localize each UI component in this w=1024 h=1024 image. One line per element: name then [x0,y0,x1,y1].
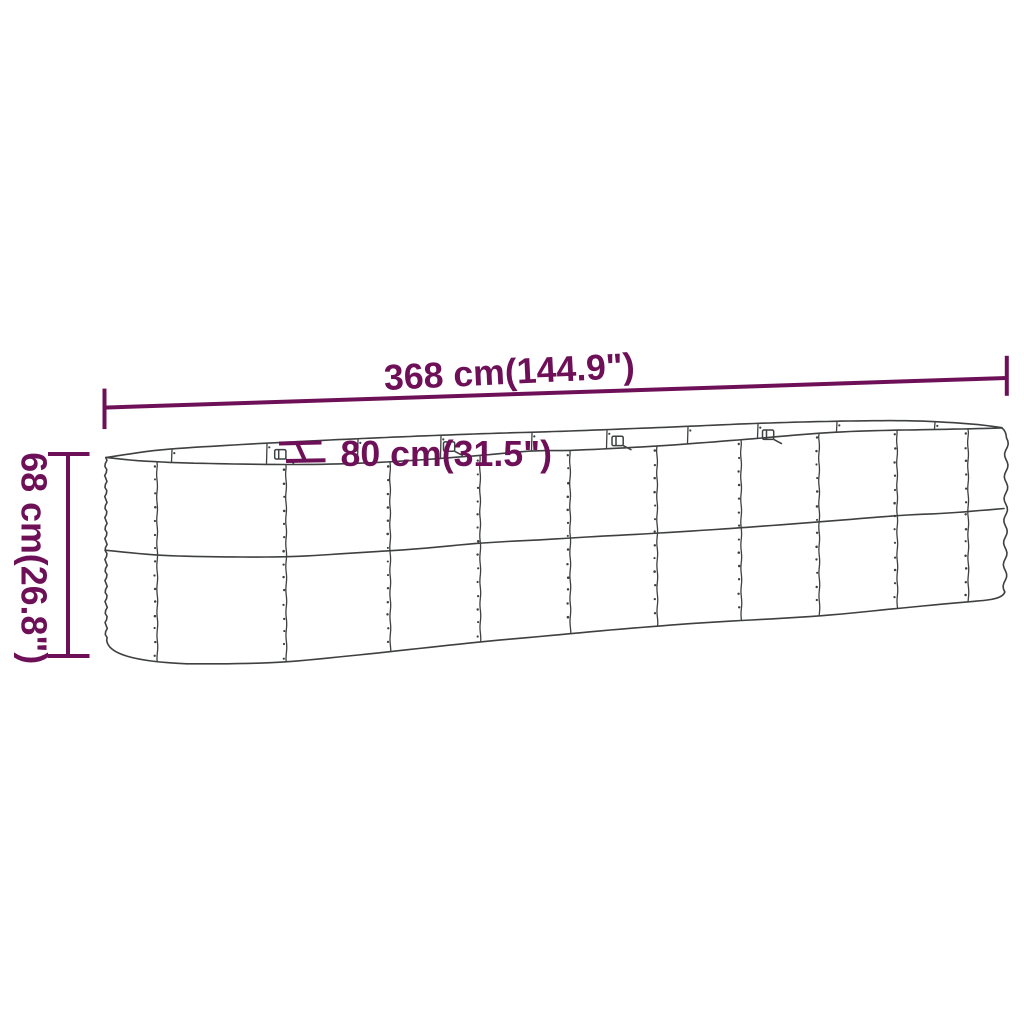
svg-text:68 cm(26.8"): 68 cm(26.8") [14,452,55,664]
svg-text:80 cm(31.5"): 80 cm(31.5") [341,433,553,474]
